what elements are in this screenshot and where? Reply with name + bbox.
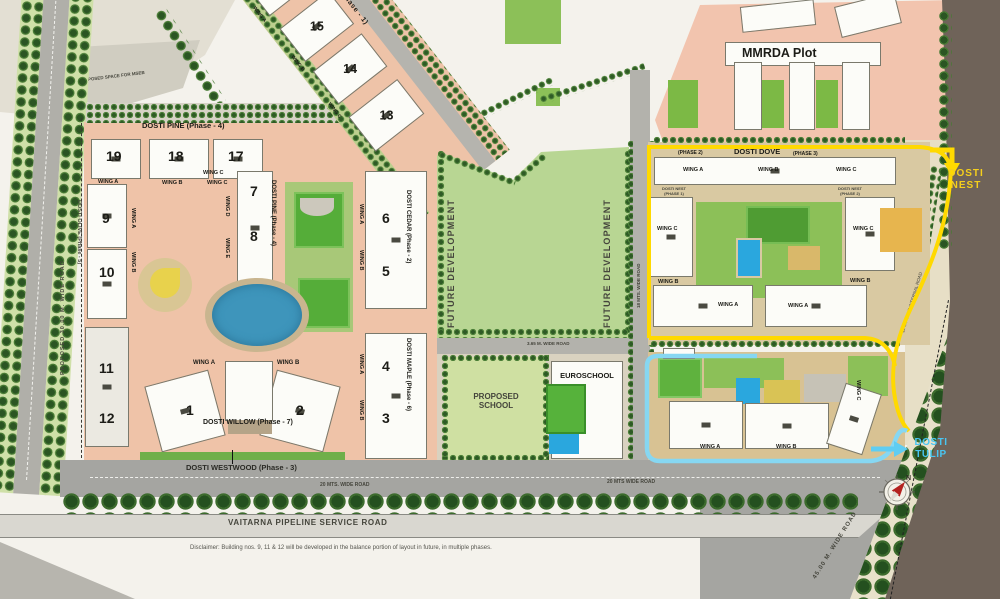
mmrda-label: MMRDA Plot <box>742 46 817 60</box>
future-development-label-right: FUTURE DEVELOPMENT <box>602 199 612 328</box>
pine-tower-wing-e: WING E <box>224 238 230 258</box>
vaitarna-label: VAITARNA PIPELINE SERVICE ROAD <box>228 518 388 527</box>
tulip-wing-b: WING B <box>776 444 796 450</box>
pine-title: DOSTI PINE (Phase - 4) <box>142 122 225 131</box>
dove-sports-field <box>748 208 808 242</box>
building-14-number: 14 <box>343 62 357 76</box>
olive-wing-a: WING A <box>130 208 136 228</box>
olive-title: DOSTI OLIVE (Phase - 5) <box>76 200 82 264</box>
building-1-number: 1 <box>186 402 194 418</box>
dove-wing-a: WING A <box>683 167 703 173</box>
westwood-title: DOSTI WESTWOOD (Phase - 3) <box>186 464 297 473</box>
tulip-sand-court <box>764 380 800 404</box>
building-13-number: 13 <box>379 108 393 122</box>
tulip-tennis <box>660 360 700 396</box>
mmrda-green3 <box>816 80 838 128</box>
dove-phase2: (PHASE 2) <box>678 151 703 157</box>
mmrda-building-slab1 <box>735 63 761 129</box>
building-9-number: 9 <box>102 210 110 226</box>
building-19-number: 19 <box>106 148 122 164</box>
nest-phase1-line2: (PHASE 1) <box>664 191 684 196</box>
euroschool-label: EUROSCHOOL <box>552 372 622 381</box>
dove-left-slab <box>650 198 692 276</box>
nest-label-line1: DOSTI <box>948 168 984 179</box>
nest-label-line2: NEST <box>951 180 982 191</box>
building-8-number: 8 <box>250 228 258 244</box>
tulip-wing-c: WING C <box>855 380 861 400</box>
maple-title: DOSTI MAPLE (Phase - 6) <box>404 338 411 411</box>
vaitarna-band <box>0 514 885 538</box>
mmrda-green2 <box>762 80 784 128</box>
building-4-3 <box>366 334 426 458</box>
dove-wing-b-left: WING B <box>658 279 678 285</box>
cedar-wing-a: WING A <box>358 204 364 224</box>
tulip-label-line2: TULIP <box>915 449 946 460</box>
tulip-building-a <box>670 402 742 448</box>
tulip-block: WING A WING B WING C <box>648 352 905 462</box>
building-18-number: 18 <box>168 148 184 164</box>
cedar-title: DOSTI CEDAR (Phase - 2) <box>404 190 411 263</box>
proposed-school-line1: PROPOSED <box>473 392 518 401</box>
playground-wedge <box>150 268 180 298</box>
amphitheatre <box>300 198 334 216</box>
dove-court <box>788 246 820 270</box>
tulip-label-line1: DOSTI <box>914 437 947 448</box>
proposed-school-label: PROPOSED SCHOOL <box>456 392 536 410</box>
building-10-number: 10 <box>99 264 115 280</box>
dove-phase3: (PHASE 3) <box>793 152 818 158</box>
building-15-number: 15 <box>310 19 324 33</box>
building-17-number: 17 <box>228 148 244 164</box>
building-7-number: 7 <box>250 183 258 199</box>
dove-wing-a-mid1: WING A <box>718 302 738 308</box>
tulip-label-box <box>664 349 694 358</box>
dosti-master-plan: PROPOSED SPACE FOR MSEB PROPOSED 30.00 M… <box>0 0 1000 599</box>
future-development-label-left: FUTURE DEVELOPMENT <box>446 199 456 328</box>
maple-wing-b: WING B <box>358 400 364 420</box>
dove-wing-b-right: WING B <box>850 278 870 284</box>
cedar-wing-b: WING B <box>358 250 364 270</box>
mmrda-building-slab2 <box>790 63 814 129</box>
building-5-number: 5 <box>382 263 390 279</box>
dove-kids-area <box>880 208 922 252</box>
mmrda-building-slab3 <box>843 63 869 129</box>
nest-phase2-tag: DOSTI NEST (PHASE 2) <box>832 187 868 196</box>
future-dev-tree-border-bottom <box>437 328 633 338</box>
terrain-bottomleft <box>0 538 135 599</box>
nest-phase2-line2: (PHASE 2) <box>840 191 860 196</box>
dove-wing-c: WING C <box>836 167 856 173</box>
pine-wing-b: WING B <box>162 180 182 186</box>
tulip-building-b <box>746 404 828 448</box>
building-11-12 <box>86 328 128 446</box>
willow-clubhouse <box>226 362 272 420</box>
dove-bottom-slab2 <box>766 286 866 326</box>
nest-phase1-tag: DOSTI NEST (PHASE 1) <box>656 187 692 196</box>
road-18mts-label: 18 MTS. WIDE ROAD <box>636 263 641 308</box>
building-2-number: 2 <box>296 402 304 418</box>
green-patch-top <box>505 0 561 44</box>
dove-wing-c-right: WING C <box>853 226 873 232</box>
building-6-number: 6 <box>382 210 390 226</box>
mmrda-green1 <box>668 80 698 128</box>
left-road-label: PROPOSED 30.00 M. WIDE ROAD <box>60 260 66 375</box>
pine-tower-title: DOSTI PINE (Phase - 4) <box>269 180 276 246</box>
lake <box>212 284 302 346</box>
dove-wing-b: WING B <box>758 167 778 173</box>
building-4-number: 4 <box>382 358 390 374</box>
road-centerline <box>90 477 880 478</box>
willow-title: DOSTI WILLOW (Phase - 7) <box>203 419 293 427</box>
euroschool-pool <box>549 434 579 454</box>
tulip-deck <box>804 374 846 402</box>
olive-wing-b: WING B <box>130 252 136 272</box>
willow-wing-b: WING B <box>277 360 299 367</box>
pine-wing-c: WING C <box>207 180 227 186</box>
dove-pool <box>736 238 762 278</box>
building-11-number: 11 <box>99 360 114 376</box>
building-3-number: 3 <box>382 410 390 426</box>
dove-wing-a-mid2: WING A <box>788 303 808 309</box>
pine-tower-wing-d: WING D <box>224 196 230 216</box>
site-boundary-dash-left <box>81 118 82 468</box>
dark-road-tree-edge <box>938 10 952 250</box>
dosti-nest-label: DOSTI NEST <box>938 168 994 191</box>
building-12-number: 12 <box>99 410 115 426</box>
dove-wing-c-left: WING C <box>657 226 677 232</box>
road-3-65m-label: 3.65 M. WIDE ROAD <box>527 341 570 346</box>
dove-title: DOSTI DOVE <box>734 148 780 157</box>
dosti-tulip-label: DOSTI TULIP <box>903 437 959 460</box>
pine-tower-wing-c: WING C <box>203 170 223 176</box>
maple-wing-a: WING A <box>358 354 364 374</box>
tulip-pool <box>736 378 760 404</box>
building-10 <box>88 250 126 318</box>
disclaimer-text: Disclaimer: Building nos. 9, 11 & 12 wil… <box>190 545 492 552</box>
willow-wing-a: WING A <box>193 360 215 367</box>
tulip-wing-a: WING A <box>700 444 720 450</box>
road-20mts-label-left: 20 MTS. WIDE ROAD <box>320 483 369 489</box>
road-20mts-label-right: 20 MTS WIDE ROAD <box>607 480 655 486</box>
building-6-5 <box>366 172 426 308</box>
westwood-pointer <box>232 450 233 464</box>
euroschool-lawn <box>548 386 584 432</box>
tree-row-south <box>62 492 858 515</box>
dove-block: (PHASE 2) DOSTI DOVE (PHASE 3) WING A WI… <box>648 142 930 345</box>
proposed-school-line2: SCHOOL <box>479 401 513 410</box>
future-dev-tree-border-left <box>437 150 445 335</box>
